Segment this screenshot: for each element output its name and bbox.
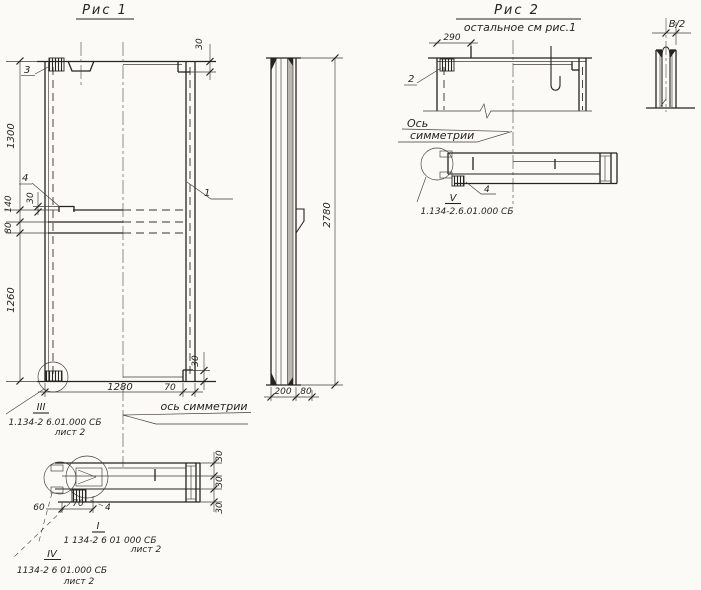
- fig2-title: Рис 2: [494, 3, 540, 18]
- fig2-subtitle: остальное см рис.1: [464, 21, 576, 34]
- side-bracket: [296, 209, 304, 233]
- fig2-axis-label-2: симметрии: [410, 129, 474, 142]
- ref-sheet-iii: лист 2: [54, 428, 86, 438]
- embed-item-2: [440, 59, 454, 71]
- dim-top-30: 30: [195, 38, 205, 50]
- embed-item-3: [49, 58, 64, 71]
- anchor-hook: [551, 46, 560, 90]
- dim-290: 290: [443, 33, 460, 43]
- dim-140: 140: [4, 195, 14, 212]
- section-mark-iv: IV: [47, 549, 58, 560]
- section-mark-i: I: [97, 521, 100, 532]
- dim-1260: 1260: [6, 287, 17, 312]
- loop-detail-view: В/2: [646, 18, 695, 112]
- ref-doc-v: 1.134-2.6.01.000 СБ: [421, 207, 514, 217]
- item-label-1: 1: [204, 188, 210, 199]
- dim-30b: 30: [215, 476, 225, 488]
- axis-of-symmetry-label: ось симметрии: [160, 400, 247, 413]
- dim-70: 70: [164, 383, 176, 393]
- dim-bottom-30: 30: [191, 355, 201, 367]
- item-label-4-section: 4: [105, 503, 111, 513]
- item-label-3: 3: [24, 65, 30, 76]
- dim-200: 200: [274, 387, 291, 397]
- dim-tab-30: 30: [26, 192, 36, 204]
- embed-tab: [59, 207, 74, 213]
- item-label-2: 2: [408, 74, 414, 85]
- break-line: [423, 104, 592, 118]
- dim-70-section: 70: [72, 499, 84, 509]
- item-label-4: 4: [22, 173, 28, 184]
- item-label-4-fig2: 4: [484, 185, 490, 195]
- dim-60: 60: [33, 503, 45, 513]
- section-mark-iii: III: [37, 402, 46, 413]
- ref-sheet-i: лист 2: [130, 545, 162, 555]
- dim-80: 80: [4, 222, 14, 234]
- dim-2780: 2780: [322, 202, 333, 227]
- technical-drawing: Рис 1 3: [0, 0, 701, 590]
- embed-item-bottom: [46, 371, 62, 381]
- fig2-section-view: 4 V 1.134-2.6.01.000 СБ: [417, 148, 617, 217]
- ref-doc-iii: 1.134-2 6.01.000 СБ: [9, 418, 102, 428]
- side-view: 2780 200 80: [264, 55, 343, 402]
- dim-30c: 30: [215, 502, 225, 514]
- dim-1300: 1300: [6, 123, 17, 148]
- drawing-sheet: Рис 1 3: [0, 0, 701, 590]
- ref-doc-iv: 1134-2 6 01.000 СБ: [17, 566, 107, 576]
- ref-sheet-iv: лист 2: [63, 577, 95, 587]
- fig1-dimensions: 1300 140 80 1260 30 1280 70 30 30 ось си…: [4, 38, 251, 424]
- embed-item-4-fig2: [452, 176, 464, 186]
- fig1-title: Рис 1: [82, 3, 128, 18]
- fig1-section-view: 30 30 30 60 70 4 I 1 134-2 6 01 000 СБ л…: [6, 389, 225, 587]
- section-mark-v: V: [450, 193, 458, 204]
- fig1-front-view: Рис 1 3: [19, 3, 233, 467]
- dim-1280: 1280: [107, 382, 132, 393]
- dim-30a: 30: [215, 450, 225, 462]
- dim-80-side: 80: [300, 387, 312, 397]
- dim-b2: В/2: [669, 19, 686, 30]
